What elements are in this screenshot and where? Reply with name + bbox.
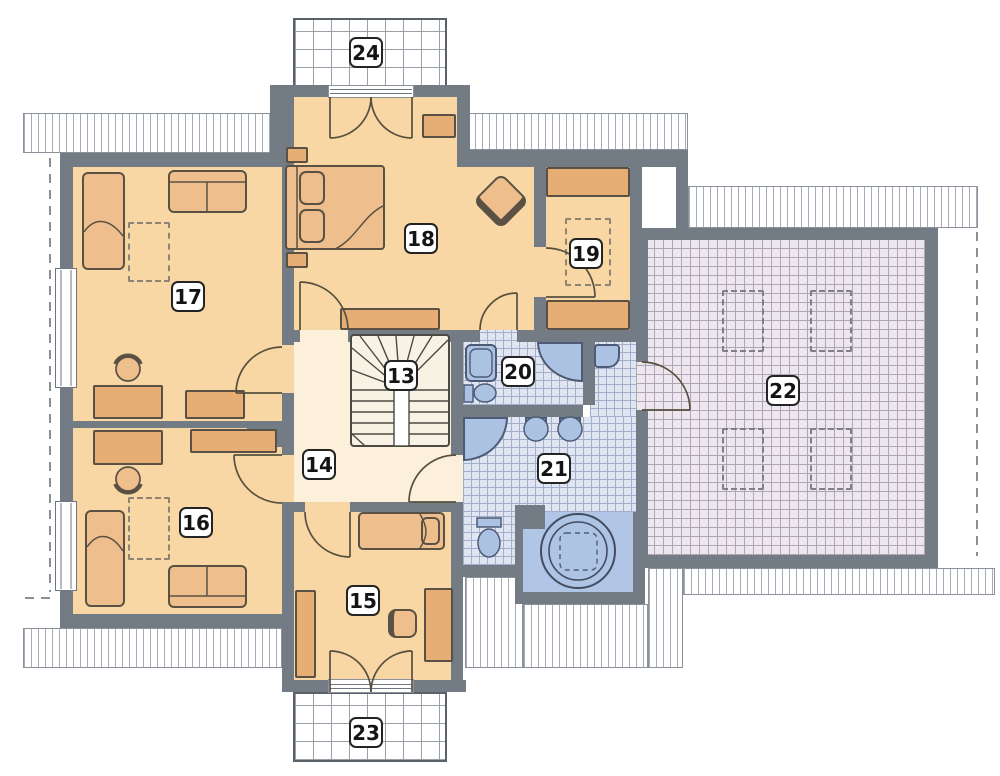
room-label-15: 15	[346, 585, 380, 616]
room-label-13: 13	[384, 360, 418, 391]
room-label-text: 15	[349, 589, 377, 613]
room-label-22: 22	[766, 375, 800, 406]
room-label-21: 21	[537, 453, 571, 484]
door-arcs	[234, 97, 690, 692]
chairs	[115, 355, 141, 493]
room-label-text: 23	[352, 721, 380, 745]
floor-plan: 13 14 15 16 17 18 19 20 21 22 23 24	[0, 0, 1000, 776]
room-label-text: 16	[182, 511, 210, 535]
furniture-details	[84, 167, 426, 596]
stair-divider	[394, 385, 409, 446]
room-label-text: 14	[305, 453, 333, 477]
room-label-20: 20	[501, 356, 535, 387]
room-label-14: 14	[302, 449, 336, 480]
room-label-19: 19	[569, 238, 603, 269]
room-label-17: 17	[171, 281, 205, 312]
room-label-text: 22	[769, 379, 797, 403]
room-label-16: 16	[179, 507, 213, 538]
room-label-text: 19	[572, 242, 600, 266]
stroke-overlay	[0, 0, 1000, 776]
room-label-text: 18	[407, 227, 435, 251]
room-label-text: 20	[504, 360, 532, 384]
room-label-text: 13	[387, 364, 415, 388]
room-label-24: 24	[349, 37, 383, 68]
room-label-23: 23	[349, 717, 383, 748]
room-label-text: 17	[174, 285, 202, 309]
room-label-text: 24	[352, 41, 380, 65]
room-label-18: 18	[404, 223, 438, 254]
room-label-text: 21	[540, 457, 568, 481]
